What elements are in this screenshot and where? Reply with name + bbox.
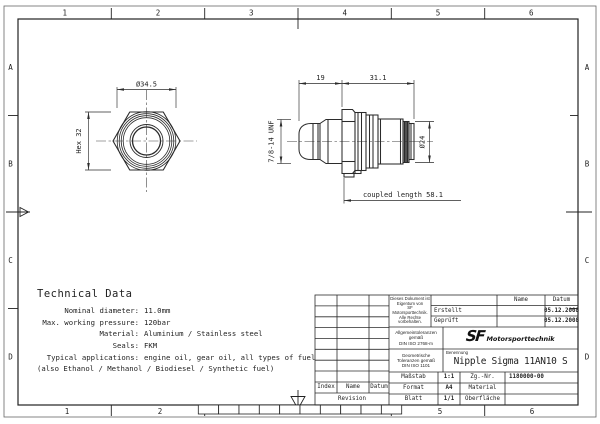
dim-arrow bbox=[117, 88, 124, 91]
zone-number: 6 bbox=[529, 9, 534, 18]
tech-value: engine oil, gear oil, all types of fuel bbox=[144, 352, 315, 364]
massstab-label: Maßstab bbox=[389, 372, 438, 383]
checked-label: Geprüft bbox=[434, 316, 494, 327]
front-view: Ø34.5 Hex 32 bbox=[75, 81, 197, 193]
zone-number: 3 bbox=[249, 9, 254, 18]
zone-number: 1 bbox=[62, 9, 67, 18]
dim-text-diameter: Ø34.5 bbox=[136, 81, 157, 89]
format-value: A4 bbox=[438, 383, 460, 394]
dim-lengths bbox=[299, 80, 414, 121]
tech-row: Nominal diameter:11.0mm bbox=[30, 305, 320, 317]
tech-row: Seals:FKM bbox=[30, 340, 320, 352]
dim-arrow bbox=[342, 82, 349, 85]
zone-letter: A bbox=[585, 63, 590, 72]
dim-text-hex: Hex 32 bbox=[75, 128, 83, 153]
dim-arrow bbox=[299, 82, 306, 85]
dim-arrow bbox=[344, 199, 351, 202]
tech-label: Max. working pressure: bbox=[30, 317, 139, 329]
zone-letter: C bbox=[585, 256, 590, 265]
zone-letter: A bbox=[8, 63, 13, 72]
dim-arrow bbox=[280, 157, 283, 164]
material-label: Material bbox=[460, 383, 505, 394]
zone-number: 5 bbox=[436, 9, 441, 18]
massstab-value: 1:1 bbox=[438, 372, 460, 383]
dim-arrow bbox=[87, 112, 90, 119]
zone-letter: C bbox=[8, 256, 13, 265]
header-datum: Datum bbox=[545, 295, 578, 306]
name-label: Name bbox=[337, 382, 369, 393]
tech-label: Seals: bbox=[30, 340, 139, 352]
blatt-value: 1/1 bbox=[438, 394, 460, 405]
dim-text-19: 19 bbox=[316, 74, 324, 82]
dim-text-31-1: 31.1 bbox=[370, 74, 387, 82]
dim-arrow bbox=[87, 163, 90, 170]
general-tolerances-note: Allgemeintoleranzen gemäß DIN ISO 2768-m bbox=[389, 328, 443, 348]
zone-letter: D bbox=[8, 353, 13, 362]
dim-arrow bbox=[428, 122, 431, 129]
dim-arrow bbox=[335, 82, 342, 85]
zg-nr-label: Zg.-Nr. bbox=[460, 372, 505, 383]
datum-label: Datum bbox=[369, 382, 389, 393]
tech-value: 11.0mm bbox=[144, 305, 170, 317]
blatt-label: Blatt bbox=[389, 394, 438, 405]
revision-label: Revision bbox=[315, 393, 389, 405]
oberflaeche-label: Oberfläche bbox=[460, 394, 505, 405]
dim-text-thread: 7/8-14 UNF bbox=[268, 120, 276, 162]
tech-row: Max. working pressure:120bar bbox=[30, 317, 320, 329]
zone-number: 5 bbox=[438, 407, 443, 416]
technical-data-note: (also Ethanol / Methanol / Biodiesel / S… bbox=[37, 363, 320, 375]
company-logo: SF Motorsporttechnik bbox=[443, 327, 578, 349]
created-date: 05.12.2008 bbox=[545, 306, 578, 317]
technical-data-title: Technical Data bbox=[37, 288, 320, 300]
tech-label: Typical applications: bbox=[30, 352, 139, 364]
dim-text-d24: Ø24 bbox=[419, 136, 427, 149]
tech-value: 120bar bbox=[144, 317, 170, 329]
zone-letter: B bbox=[585, 160, 590, 169]
tech-label: Nominal diameter: bbox=[30, 305, 139, 317]
tech-value: FKM bbox=[144, 340, 157, 352]
centerlines bbox=[96, 90, 197, 192]
logo-sf-mark: SF bbox=[465, 327, 485, 345]
scale-reference-boxes bbox=[198, 405, 401, 414]
checked-date: 05.12.2008 bbox=[545, 316, 578, 327]
index-label: Index bbox=[315, 382, 337, 393]
created-label: Erstellt bbox=[434, 306, 494, 317]
zone-number: 2 bbox=[158, 407, 163, 416]
tech-value: Aluminium / Stainless steel bbox=[144, 328, 263, 340]
dim-arrow bbox=[407, 82, 414, 85]
format-label: Format bbox=[389, 383, 438, 394]
zone-letter: B bbox=[8, 160, 13, 169]
part-profile bbox=[299, 110, 414, 178]
part-name: Nipple Sigma 11AN10 S bbox=[443, 355, 578, 370]
ownership-note: Dieses Dokument ist Eigentum von SF Moto… bbox=[389, 296, 431, 326]
dim-arrow bbox=[428, 156, 431, 163]
tech-row: Material:Aluminium / Stainless steel bbox=[30, 328, 320, 340]
tech-label: Material: bbox=[30, 328, 139, 340]
zone-letter: D bbox=[585, 353, 590, 362]
technical-data-section: Technical Data Nominal diameter:11.0mm M… bbox=[30, 288, 320, 375]
technical-data-rows: Nominal diameter:11.0mm Max. working pre… bbox=[30, 305, 320, 363]
side-view: 19 31.1 7/8-14 UNF Ø24 bbox=[268, 74, 462, 204]
dim-text-coupled-length: coupled length 58.1 bbox=[363, 191, 443, 199]
zone-number: 6 bbox=[530, 407, 535, 416]
dim-arrow bbox=[169, 88, 176, 91]
dim-arrow bbox=[280, 120, 283, 127]
geometric-tolerances-note: Geometrische Toleranzen gemäß DIN ISO 11… bbox=[389, 350, 443, 371]
zone-number: 1 bbox=[65, 407, 70, 416]
drawing-sheet: 1 2 3 4 5 6 1 2 5 6 A B C D A B C D bbox=[0, 0, 600, 424]
header-name: Name bbox=[497, 295, 545, 306]
zg-nr-value: 1180000-00 bbox=[509, 372, 578, 383]
zone-number: 4 bbox=[342, 9, 347, 18]
tech-row: Typical applications:engine oil, gear oi… bbox=[30, 352, 320, 364]
zone-number: 2 bbox=[156, 9, 161, 18]
logo-company-name: Motorsporttechnik bbox=[486, 335, 554, 343]
